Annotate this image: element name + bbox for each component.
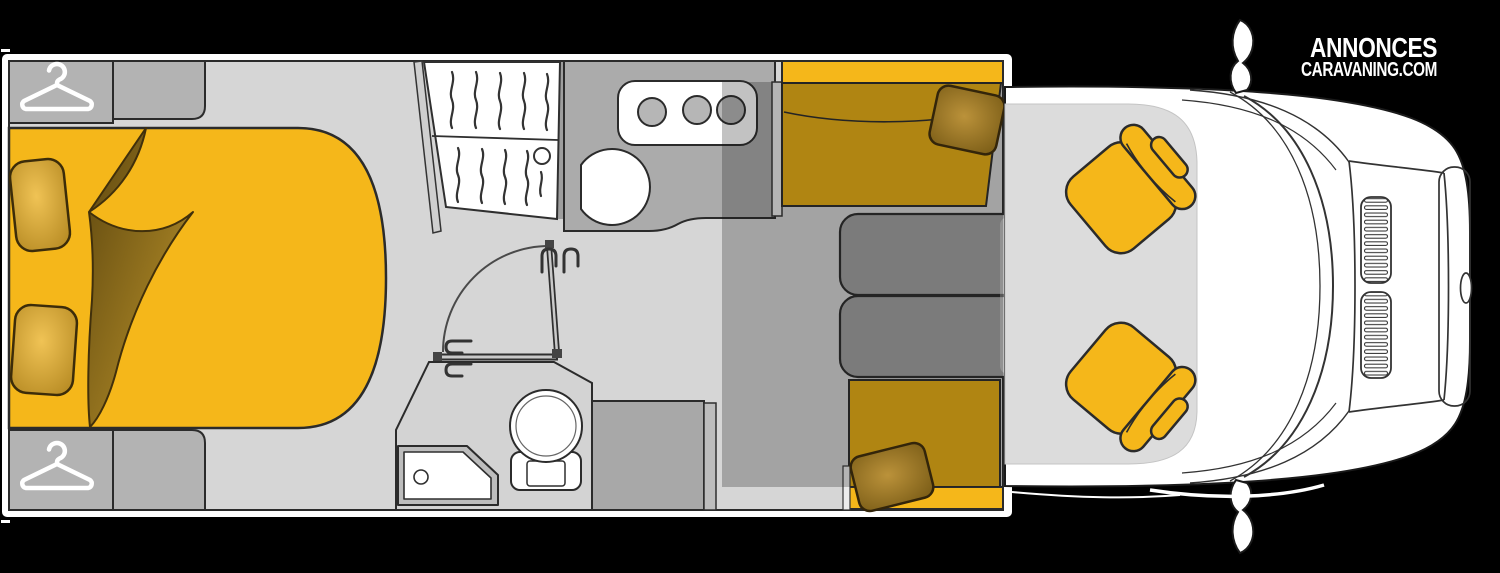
bed-pillow [8, 157, 71, 252]
kitchen-sink [581, 149, 650, 225]
floorplan-svg: ANNONCES CARAVANING.COM [0, 0, 1500, 573]
rear-marker-bottom [1, 520, 10, 523]
base-cabinet [592, 401, 704, 510]
hob-burner [638, 98, 666, 126]
brand-watermark: ANNONCES CARAVANING.COM [1301, 32, 1437, 81]
lounge-dinette [722, 61, 1022, 513]
wardrobe-top [9, 61, 113, 123]
hood-grille [1361, 292, 1391, 378]
hood-grille [1361, 197, 1391, 283]
closet-knob [534, 148, 550, 164]
rear-marker-top [1, 49, 10, 52]
floorplan-canvas: ANNONCES CARAVANING.COM [0, 0, 1500, 573]
front-emblem [1461, 273, 1472, 303]
bench-backrest-top [782, 61, 1003, 83]
hob-burner [683, 96, 711, 124]
bed-pillow [10, 304, 78, 396]
shower-drain [414, 470, 428, 484]
hanging-closet [424, 62, 560, 219]
cabinet-bottom [113, 430, 205, 510]
cabinet-top [113, 61, 205, 119]
toilet-bowl [510, 390, 582, 462]
brand-line2: CARAVANING.COM [1301, 59, 1437, 81]
bench-cushion [928, 84, 1007, 157]
mid-cabin [414, 61, 775, 233]
